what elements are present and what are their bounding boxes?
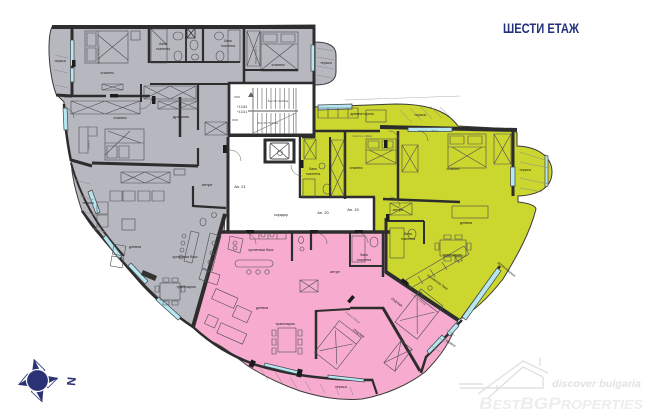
svg-text:коридор: коридор — [274, 213, 288, 217]
svg-text:кухненски бокс: кухненски бокс — [172, 255, 197, 259]
svg-text:тоалетна: тоалетна — [357, 258, 371, 262]
svg-text:кухненски бокс: кухненски бокс — [248, 248, 273, 252]
svg-text:баня: баня — [309, 167, 317, 171]
svg-text:спалня: спалня — [446, 166, 459, 171]
svg-text:тераса: тераса — [320, 61, 331, 65]
svg-text:+13,61: +13,61 — [237, 110, 247, 114]
svg-text:антре: антре — [393, 207, 404, 212]
svg-text:баня: баня — [360, 253, 368, 257]
svg-text:тоалетна: тоалетна — [156, 47, 170, 51]
svg-text:спалня: спалня — [113, 115, 126, 120]
svg-text:тераса: тераса — [335, 385, 346, 389]
svg-text:баня: баня — [224, 39, 232, 43]
svg-text:8см 35,70х29см: 8см 35,70х29см — [268, 99, 289, 103]
svg-text:дневна+кухня: дневна+кухня — [350, 112, 373, 116]
svg-text:баня: баня — [404, 232, 412, 236]
svg-text:N: N — [64, 376, 79, 386]
svg-text:discover bulgaria: discover bulgaria — [552, 378, 641, 390]
svg-text:дневна: дневна — [460, 221, 472, 225]
svg-text:антре: антре — [202, 182, 213, 187]
svg-text:тоалетна: тоалетна — [401, 237, 415, 241]
svg-text:ШЕСТИ ЕТАЖ: ШЕСТИ ЕТАЖ — [503, 21, 580, 36]
svg-text:тераса: тераса — [519, 168, 530, 172]
svg-text:4 легло + 120см: 4 легло + 120см — [352, 134, 372, 138]
svg-text:спалня: спалня — [271, 62, 284, 67]
svg-text:Ап. 19: Ап. 19 — [347, 207, 359, 212]
svg-text:тоалетна: тоалетна — [221, 44, 235, 48]
svg-text:дневна: дневна — [256, 306, 268, 310]
svg-text:5 легло+160см: 5 легло+160см — [254, 46, 258, 64]
svg-text:дневна: дневна — [129, 245, 141, 249]
svg-text:тоалетна: тоалетна — [306, 172, 320, 176]
svg-text:тераса: тераса — [54, 59, 65, 63]
svg-text:Ап. 20: Ап. 20 — [317, 210, 329, 215]
svg-text:5 легло+160см: 5 легло+160см — [97, 46, 101, 64]
svg-text:антре: антре — [330, 270, 340, 274]
svg-text:тераса: тераса — [414, 113, 425, 117]
svg-text:BESTBGPROPERTIES: BESTBGPROPERTIES — [479, 394, 643, 413]
svg-text:5 легло: 5 легло — [87, 141, 91, 151]
svg-text:трапезария: трапезария — [176, 285, 195, 289]
svg-text:тераса: тераса — [82, 201, 93, 205]
svg-text:4 легло + 120см: 4 легло + 120см — [418, 129, 438, 133]
svg-text:спалня: спалня — [349, 165, 362, 170]
svg-text:трапезария: трапезария — [442, 253, 461, 257]
svg-text:8см 35,75х29см: 8см 35,75х29см — [258, 121, 279, 125]
svg-text:баня: баня — [159, 42, 167, 46]
svg-text:трапезария: трапезария — [275, 322, 294, 326]
svg-text:спалня: спалня — [100, 70, 113, 75]
svg-text:+13,84: +13,84 — [237, 105, 247, 109]
svg-text:Ап. 21: Ап. 21 — [234, 184, 246, 189]
svg-text:дрешник: дрешник — [173, 114, 189, 119]
